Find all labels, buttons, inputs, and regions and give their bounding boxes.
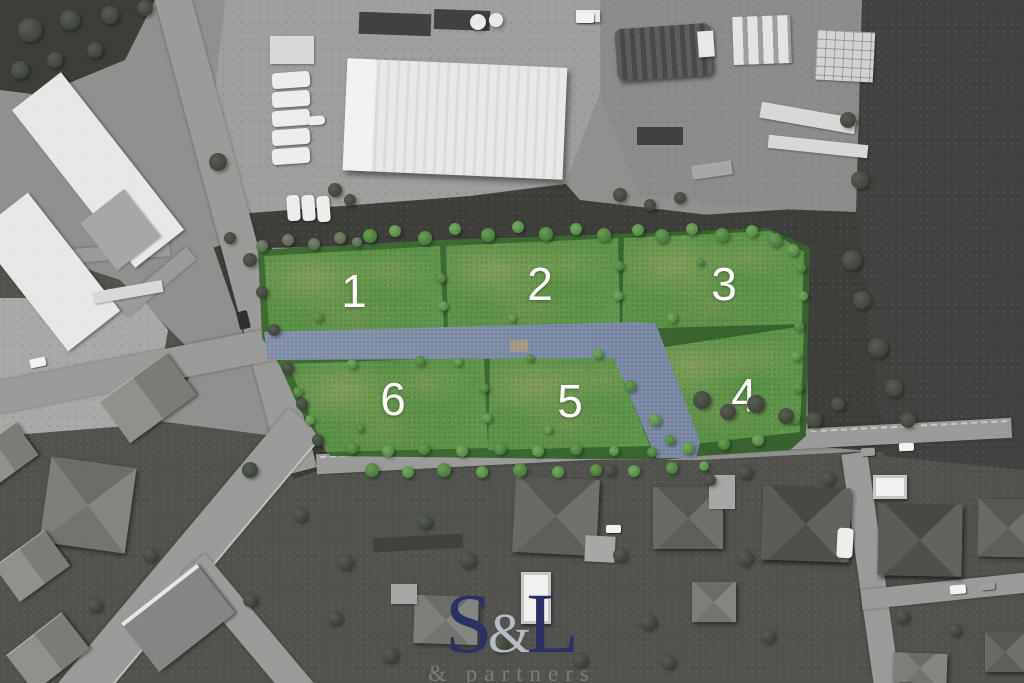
tree	[851, 171, 869, 189]
tree	[438, 301, 448, 311]
tree	[11, 61, 29, 79]
tree	[101, 6, 119, 24]
tree	[693, 391, 711, 409]
tree	[853, 291, 871, 309]
tree	[747, 395, 765, 413]
tree	[895, 609, 909, 623]
tree	[87, 42, 103, 58]
tree	[667, 313, 677, 323]
tree	[720, 404, 736, 420]
tree	[347, 359, 357, 369]
tree	[282, 234, 294, 246]
tree	[365, 463, 379, 477]
tree	[88, 598, 102, 612]
tree	[137, 0, 153, 16]
tree	[481, 228, 495, 242]
tree	[570, 443, 582, 455]
tree	[470, 14, 486, 30]
aerial-site-plan: 1 2 3 4 5 6 S & L & partners	[0, 0, 1024, 683]
logo-ampersand: &	[488, 612, 532, 657]
tree	[798, 291, 808, 301]
sl-logo-text: S & L	[445, 588, 579, 659]
tree	[513, 463, 527, 477]
tree	[460, 552, 476, 568]
tree	[794, 321, 804, 331]
tree	[60, 10, 80, 30]
tree	[296, 398, 308, 410]
tree	[752, 434, 764, 446]
tree	[382, 445, 394, 457]
logo-letter-l: L	[526, 588, 579, 659]
tree	[661, 655, 675, 669]
tree	[544, 426, 552, 434]
sl-logo-watermark: S & L & partners	[428, 588, 596, 683]
tree	[778, 408, 794, 424]
tree	[793, 383, 803, 393]
tree	[363, 229, 377, 243]
tree	[806, 412, 822, 428]
tree	[649, 414, 661, 426]
tree	[344, 194, 356, 206]
tree	[346, 442, 358, 454]
tree	[282, 362, 294, 374]
tree	[644, 199, 656, 211]
tree	[655, 229, 669, 243]
tree	[539, 227, 553, 241]
tree	[682, 442, 694, 454]
tree	[418, 443, 430, 455]
tree	[293, 387, 303, 397]
tree	[454, 358, 462, 366]
tree	[494, 443, 506, 455]
tree	[313, 312, 323, 322]
tree	[243, 593, 257, 607]
tree	[256, 240, 268, 252]
tree	[842, 250, 862, 270]
tree	[613, 291, 623, 301]
tree	[436, 273, 446, 283]
tree	[840, 112, 856, 128]
tree	[18, 18, 42, 42]
tree	[526, 354, 534, 362]
tree	[308, 238, 320, 250]
tree	[352, 237, 362, 247]
tree	[328, 611, 342, 625]
tree	[738, 465, 752, 479]
tree	[437, 463, 451, 477]
tree	[796, 263, 806, 273]
tree	[900, 412, 916, 428]
tree	[674, 192, 686, 204]
tree	[456, 445, 468, 457]
tree	[613, 188, 627, 202]
tree	[831, 397, 845, 411]
tree	[715, 228, 729, 242]
tree	[47, 52, 63, 68]
tree	[389, 225, 401, 237]
tree	[597, 228, 611, 242]
tree	[356, 424, 364, 432]
tree	[482, 413, 492, 423]
tree	[665, 435, 675, 445]
tree	[821, 471, 835, 485]
tree	[647, 447, 657, 457]
tree	[402, 466, 414, 478]
tree	[746, 225, 758, 237]
tree	[328, 183, 342, 197]
tree	[382, 647, 398, 663]
tree	[479, 383, 489, 393]
tree	[209, 153, 227, 171]
tree	[718, 438, 730, 450]
tree	[791, 351, 801, 361]
tree	[293, 508, 307, 522]
tree	[590, 464, 602, 476]
tree	[449, 223, 461, 235]
tree	[532, 445, 544, 457]
tree	[337, 554, 353, 570]
tree	[243, 253, 257, 267]
tree	[312, 434, 324, 446]
tree	[305, 415, 315, 425]
tree	[640, 614, 656, 630]
tree	[737, 550, 753, 566]
tree	[868, 338, 888, 358]
tree	[143, 548, 157, 562]
tree	[696, 258, 704, 266]
tree	[224, 232, 236, 244]
tree	[666, 462, 678, 474]
tree	[609, 446, 619, 456]
logo-subtitle: & partners	[428, 661, 596, 683]
tree	[704, 474, 716, 486]
tree	[508, 314, 516, 322]
tree	[768, 233, 782, 247]
tree	[334, 232, 346, 244]
tree	[256, 286, 268, 298]
tree	[613, 548, 627, 562]
tree	[268, 324, 280, 336]
tree	[885, 379, 903, 397]
tree	[949, 624, 961, 636]
tree	[418, 515, 432, 529]
tree	[418, 231, 432, 245]
tree	[624, 380, 636, 392]
tree	[552, 466, 564, 478]
trees-layer	[0, 0, 1024, 683]
tree	[593, 349, 603, 359]
tree	[512, 221, 524, 233]
tree	[604, 464, 616, 476]
tree	[761, 629, 775, 643]
logo-letter-s: S	[445, 588, 493, 659]
tree	[489, 13, 503, 27]
tree	[686, 223, 698, 235]
tree	[614, 261, 624, 271]
tree	[415, 356, 425, 366]
tree	[476, 466, 488, 478]
tree	[632, 224, 644, 236]
tree	[242, 462, 258, 478]
tree	[570, 223, 582, 235]
tree	[628, 465, 640, 477]
tree	[787, 244, 799, 256]
tree	[699, 461, 709, 471]
